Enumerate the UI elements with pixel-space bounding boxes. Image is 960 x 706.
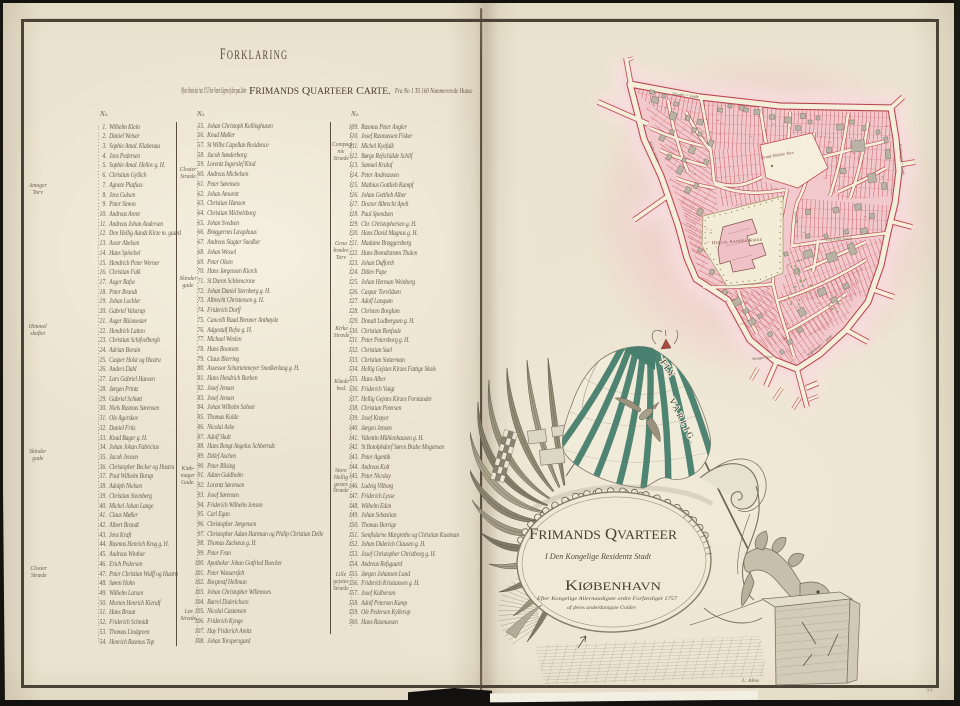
svg-text:I Den Kongelige Residentz Stad: I Den Kongelige Residentz Stadt: [544, 551, 652, 561]
svg-text:Efter Kongelige Allernaadigste: Efter Kongelige Allernaadigste ordre For…: [536, 595, 677, 602]
svg-text:af deres underdanigste Golder: af deres underdanigste Golder: [567, 604, 637, 611]
svg-text:FRIMANDS QVARTEER: FRIMANDS QVARTEER: [529, 526, 678, 543]
svg-text:94: 94: [926, 687, 933, 694]
svg-text:KIØBENHAVN: KIØBENHAVN: [565, 578, 661, 594]
svg-text:L: Alles: L: Alles: [741, 678, 759, 684]
